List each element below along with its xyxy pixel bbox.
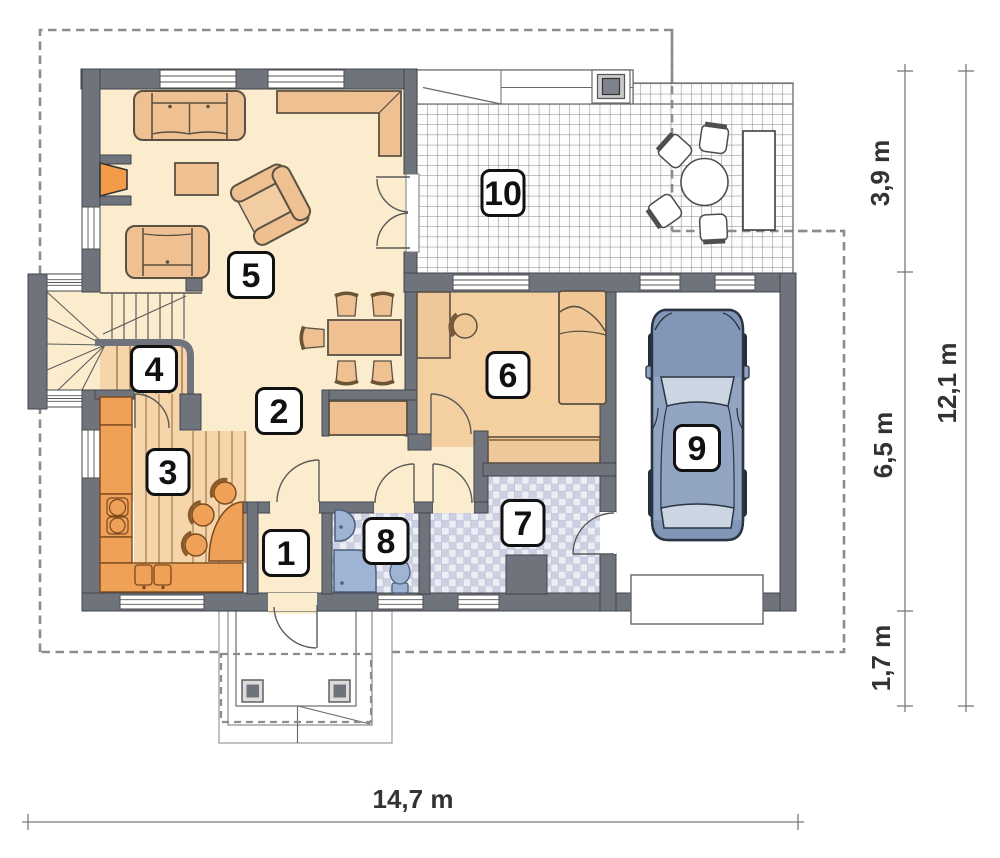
svg-text:3: 3	[159, 454, 178, 492]
svg-text:8: 8	[377, 523, 396, 561]
svg-text:1: 1	[277, 535, 296, 573]
svg-text:6,5 m: 6,5 m	[868, 412, 898, 479]
svg-text:12,1 m: 12,1 m	[932, 343, 962, 424]
svg-text:6: 6	[499, 357, 518, 395]
svg-text:4: 4	[145, 351, 164, 389]
svg-text:2: 2	[270, 393, 289, 431]
svg-text:5: 5	[242, 257, 261, 295]
svg-text:3,9 m: 3,9 m	[865, 140, 895, 207]
svg-text:1,7 m: 1,7 m	[866, 625, 896, 692]
svg-text:9: 9	[688, 430, 707, 468]
svg-text:10: 10	[484, 175, 522, 213]
svg-text:14,7 m: 14,7 m	[373, 784, 454, 814]
svg-text:7: 7	[514, 505, 533, 543]
